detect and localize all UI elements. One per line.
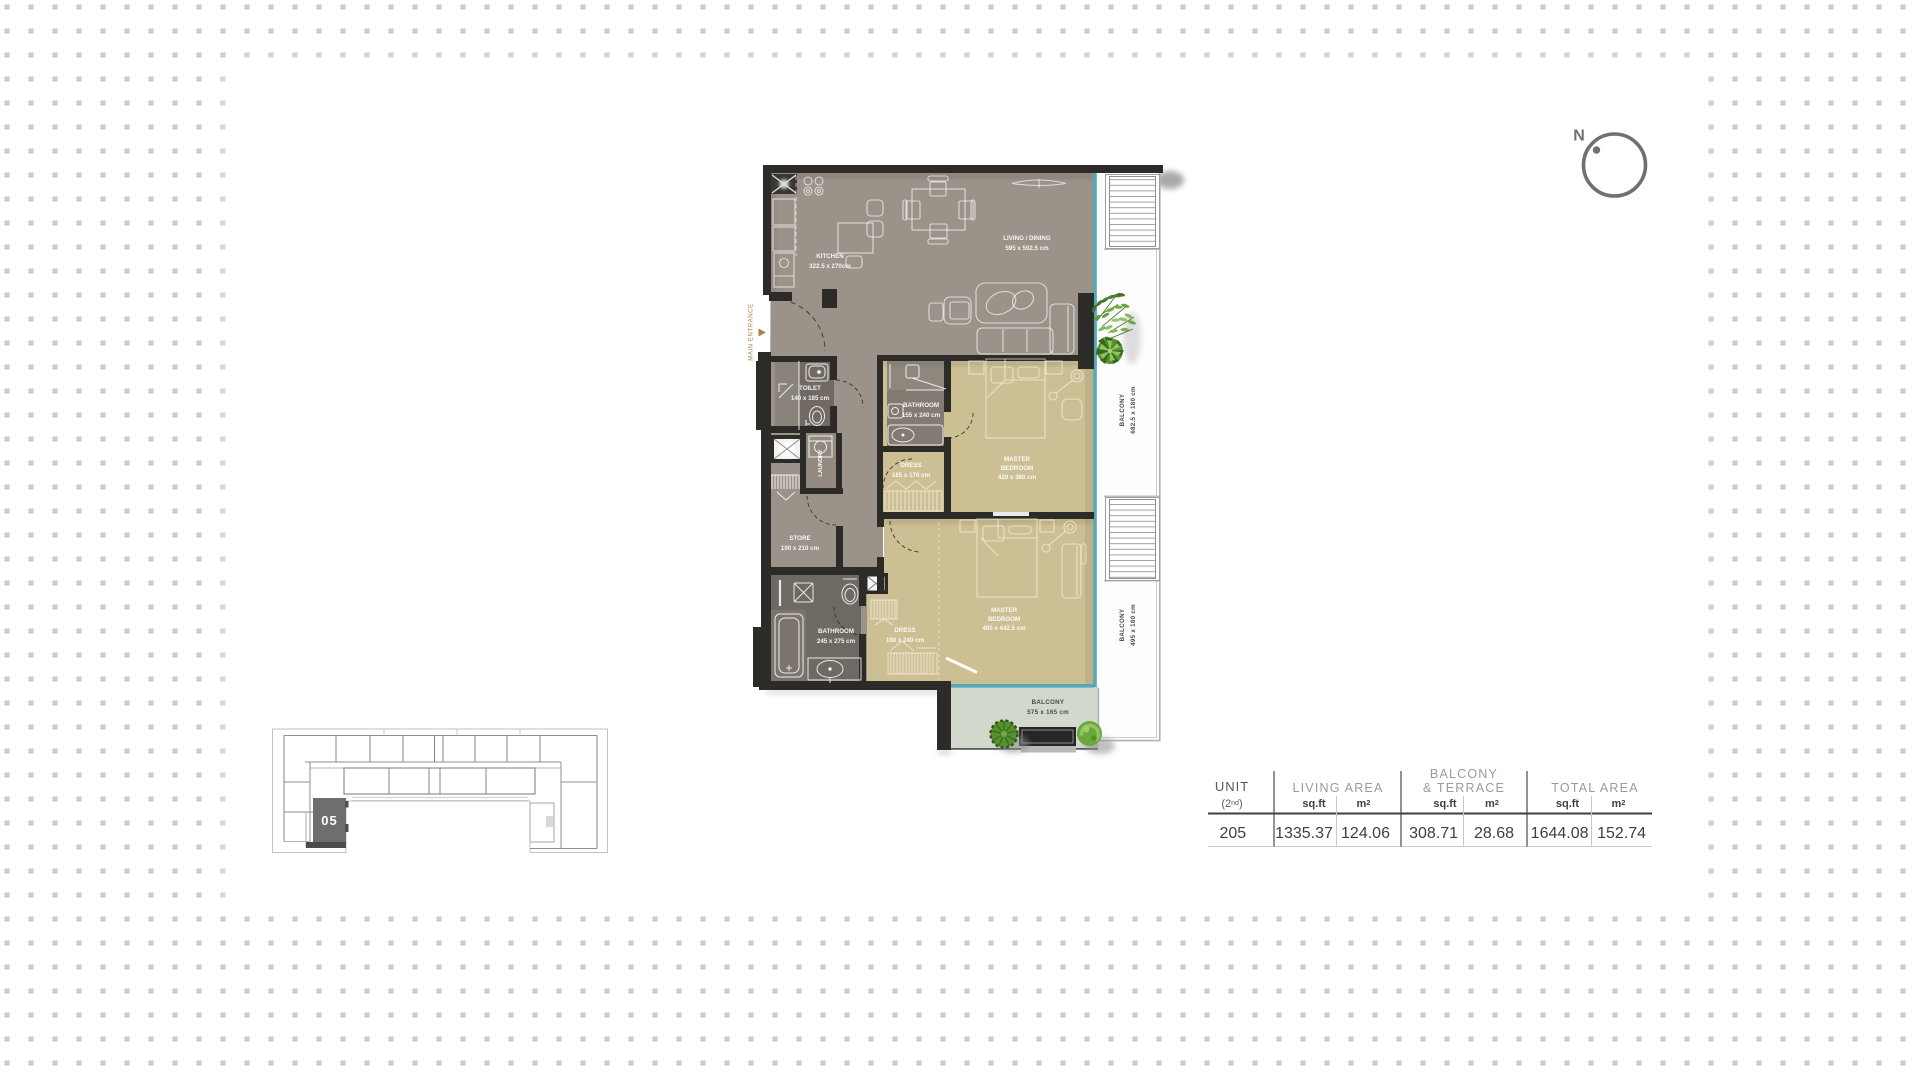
svg-text:BALCONY: BALCONY (1119, 393, 1126, 426)
svg-text:575 x 165 cm: 575 x 165 cm (1027, 709, 1069, 716)
svg-text:N: N (1573, 128, 1585, 145)
svg-text:595 x 502.5 cm: 595 x 502.5 cm (1005, 245, 1049, 252)
svg-text:165 x 170 cm: 165 x 170 cm (892, 472, 931, 479)
svg-text:BATHROOM: BATHROOM (903, 402, 939, 409)
svg-text:DRESS: DRESS (894, 627, 915, 634)
svg-text:TOTAL AREA: TOTAL AREA (1551, 781, 1639, 795)
svg-text:420 x 380 cm: 420 x 380 cm (998, 474, 1037, 481)
svg-text:BALCONY: BALCONY (1119, 608, 1126, 641)
svg-text:140 x 185 cm: 140 x 185 cm (791, 395, 830, 402)
svg-text:495 x 180 cm: 495 x 180 cm (1130, 604, 1137, 646)
svg-text:sq.ft: sq.ft (1302, 798, 1326, 810)
svg-text:sq.ft: sq.ft (1556, 798, 1580, 810)
svg-text:124.06: 124.06 (1341, 825, 1390, 842)
svg-text:BEDROOM: BEDROOM (1001, 465, 1033, 472)
svg-text:TOILET: TOILET (799, 385, 821, 392)
svg-text:LAUNDRY: LAUNDRY (818, 449, 824, 476)
svg-text:MAIN ENTRANCE: MAIN ENTRANCE (749, 303, 755, 360)
svg-text:BALCONY: BALCONY (1032, 699, 1065, 706)
svg-text:245 x 275 cm: 245 x 275 cm (817, 638, 856, 645)
svg-text:STORE: STORE (789, 535, 810, 542)
svg-text:sq.ft: sq.ft (1433, 798, 1457, 810)
svg-text:1644.08: 1644.08 (1531, 825, 1589, 842)
svg-text:MASTER: MASTER (991, 607, 1018, 614)
svg-text:400 x 442.5 cm: 400 x 442.5 cm (982, 625, 1026, 632)
svg-text:28.68: 28.68 (1474, 825, 1514, 842)
svg-text:MASTER: MASTER (1004, 456, 1031, 463)
svg-text:152.74: 152.74 (1597, 825, 1646, 842)
svg-text:KITCHEN: KITCHEN (816, 253, 844, 260)
svg-text:1335.37: 1335.37 (1275, 825, 1333, 842)
svg-text:LIVING / DINING: LIVING / DINING (1003, 235, 1051, 242)
svg-text:190 x 240 cm: 190 x 240 cm (886, 637, 925, 644)
svg-text:UNIT: UNIT (1215, 779, 1249, 794)
svg-text:LIVING AREA: LIVING AREA (1292, 781, 1383, 795)
svg-text:682.5 x 180 cm: 682.5 x 180 cm (1130, 386, 1137, 434)
svg-text:BALCONY: BALCONY (1430, 767, 1498, 781)
svg-text:05: 05 (321, 813, 337, 828)
svg-text:& TERRACE: & TERRACE (1423, 781, 1505, 795)
svg-text:190 x 210 cm: 190 x 210 cm (781, 545, 820, 552)
svg-text:BATHROOM: BATHROOM (818, 628, 854, 635)
svg-text:155 x 240 cm: 155 x 240 cm (902, 412, 941, 419)
svg-text:DRESS: DRESS (900, 462, 921, 469)
svg-text:308.71: 308.71 (1409, 825, 1458, 842)
svg-text:205: 205 (1219, 825, 1246, 842)
svg-text:BEDROOM: BEDROOM (988, 616, 1020, 623)
svg-text:322.5 x 270cm: 322.5 x 270cm (809, 263, 851, 270)
